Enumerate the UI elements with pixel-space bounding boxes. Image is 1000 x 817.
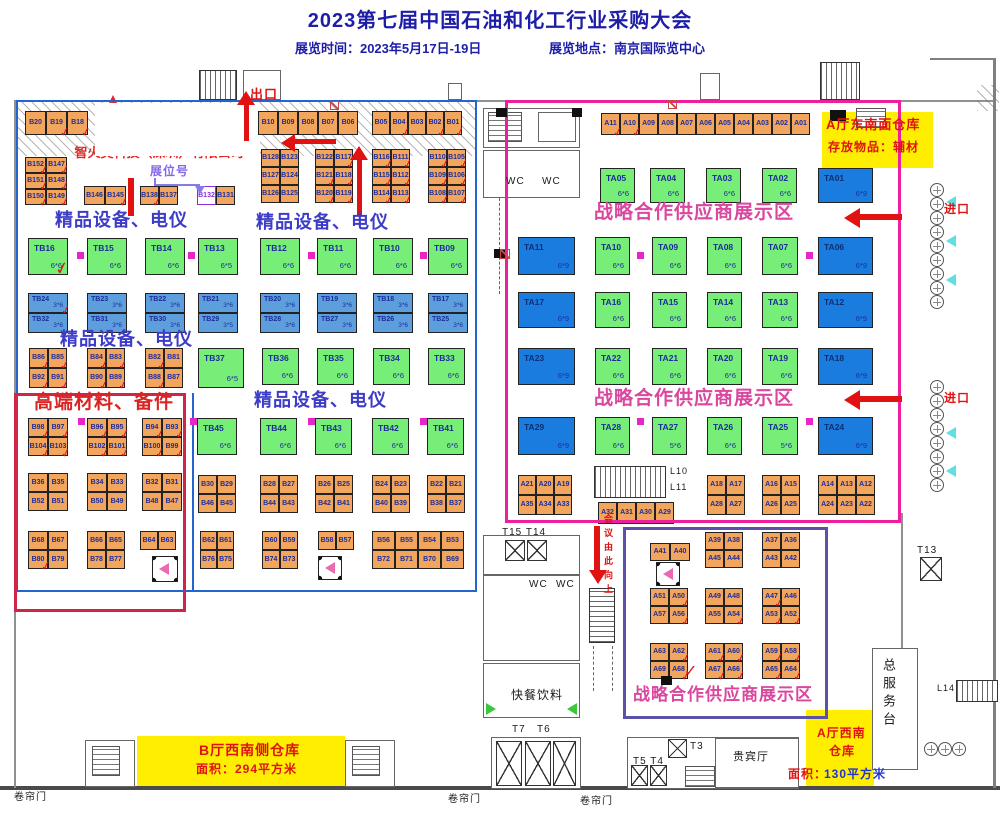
booth-id: TB45 xyxy=(203,424,224,433)
wall xyxy=(858,214,902,220)
sold-check-icon: ✓ xyxy=(53,259,71,279)
booth-id: B128 xyxy=(262,154,279,161)
booth-B112: B112✓ xyxy=(391,167,410,185)
booth-B05: B05 xyxy=(372,111,390,135)
revolving-door-icon xyxy=(930,380,944,394)
booth-id: B26 xyxy=(318,481,331,488)
text-label: 进口 xyxy=(944,203,970,215)
booth-TB15: TB156*6 xyxy=(87,238,127,275)
booth-id: B65 xyxy=(109,537,122,544)
sold-check-icon: ✓ xyxy=(680,614,692,628)
booth-size: 6*6 xyxy=(220,442,233,450)
booth-size: 6*6 xyxy=(393,372,406,380)
revolving-door-icon xyxy=(930,281,944,295)
text-label: A厅西南 xyxy=(817,727,866,739)
booth-id: B127 xyxy=(262,172,279,179)
booth-id: B52 xyxy=(32,498,45,505)
booth-id: TA16 xyxy=(601,298,621,307)
booth-TB27: TB273*6 xyxy=(317,313,357,333)
booth-size: 6*6 xyxy=(670,315,683,323)
booth-A58: A58✓ xyxy=(781,643,800,661)
text-label: 快餐饮料 xyxy=(511,689,563,701)
text-label: 精品设备、电仪 xyxy=(60,330,193,348)
text-label: 会议由此向上 xyxy=(603,514,612,598)
booth-id: A21 xyxy=(521,481,534,488)
booth-id: TB42 xyxy=(378,424,399,433)
booth-size: 6*6 xyxy=(340,262,353,270)
booth-TA11: TA116*9 xyxy=(518,237,575,275)
sold-check-icon: ✓ xyxy=(735,614,747,628)
booth-B127: B127 xyxy=(261,167,280,185)
revolving-door-icon xyxy=(930,295,944,309)
sold-check-icon: ✓ xyxy=(80,125,92,139)
booth-A56: A56✓ xyxy=(669,606,688,624)
pillar-marker xyxy=(806,252,813,259)
booth-A02: A02 xyxy=(772,113,791,135)
booth-B151: B151✓ xyxy=(25,173,46,189)
booth-TB36: TB366*6 xyxy=(262,348,299,385)
escalator-icon xyxy=(820,62,860,100)
booth-id: A49 xyxy=(708,593,721,600)
booth-B26: B26 xyxy=(315,475,334,494)
booth-B89: B89✓ xyxy=(106,368,125,388)
booth-id: A17 xyxy=(729,481,742,488)
booth-B115: B115✓ xyxy=(372,167,391,185)
booth-B109: B109✓ xyxy=(428,167,447,185)
booth-id: B77 xyxy=(109,556,122,563)
booth-size: 6*9 xyxy=(856,262,869,270)
text-label: 面积： xyxy=(788,768,827,780)
wall xyxy=(14,102,16,788)
revolving-door-icon xyxy=(930,239,944,253)
booth-B78: B78 xyxy=(87,550,106,569)
booth-B34: B34 xyxy=(87,473,107,492)
booth-TB10: TB106*6 xyxy=(373,238,413,275)
dashed-joint-line xyxy=(499,198,500,294)
text-label: 卷帘门 xyxy=(448,795,481,805)
booth-B49: B49 xyxy=(107,492,127,511)
booth-id: A14 xyxy=(821,481,834,488)
booth-A20: A20 xyxy=(536,475,554,495)
booth-id: B59 xyxy=(283,537,296,544)
booth-id: B48 xyxy=(146,498,159,505)
booth-id: TB32 xyxy=(32,316,49,323)
booth-TA29: TA296*9 xyxy=(518,417,575,455)
booth-A48: A48 xyxy=(724,588,743,606)
booth-B63: B63 xyxy=(158,531,176,550)
booth-id: B72 xyxy=(377,556,390,563)
booth-id: B08 xyxy=(302,119,315,126)
text-label: L14 xyxy=(937,684,955,693)
booth-B68: B68 xyxy=(28,531,48,550)
text-label: 130平方米 xyxy=(824,768,886,780)
booth-id: B123 xyxy=(281,154,298,161)
booth-id: A44 xyxy=(727,555,740,562)
booth-id: TA17 xyxy=(524,298,544,307)
booth-B40: B40 xyxy=(372,494,391,513)
booth-B120: B120✓ xyxy=(315,185,334,203)
booth-B27: B27 xyxy=(279,475,298,494)
booth-A59: A59✓ xyxy=(762,643,781,661)
booth-size: 6*6 xyxy=(283,262,296,270)
sold-check-icon: ✓ xyxy=(345,193,357,207)
pillar-marker xyxy=(420,252,427,259)
booth-id: B60 xyxy=(265,537,278,544)
booth-B37: B37 xyxy=(446,494,465,513)
wall xyxy=(901,513,903,648)
booth-B76: B76 xyxy=(200,550,217,569)
booth-id: TB36 xyxy=(268,354,289,363)
booth-id: TA08 xyxy=(713,243,733,252)
booth-B70: B70 xyxy=(418,550,441,569)
booth-id: A33 xyxy=(557,501,570,508)
booth-TA06: TA066*9 xyxy=(818,237,873,275)
booth-TB12: TB126*6 xyxy=(260,238,300,275)
text-label: 高端材料、备件 xyxy=(34,393,174,412)
booth-id: A24 xyxy=(821,501,834,508)
booth-B81: B81 xyxy=(164,348,183,368)
room-outline xyxy=(700,73,720,100)
direction-marker-up xyxy=(350,146,368,160)
booth-B25: B25 xyxy=(334,475,353,494)
booth-B35: B35 xyxy=(48,473,68,492)
elevator-icon xyxy=(527,540,547,561)
booth-B87: B87 xyxy=(164,368,183,388)
booth-id: B46 xyxy=(201,500,214,507)
booth-TA23: TA236*9 xyxy=(518,348,575,385)
booth-id: B44 xyxy=(263,500,276,507)
booth-TB42: TB426*6 xyxy=(372,418,409,455)
booth-B65: B65 xyxy=(106,531,125,550)
booth-B83: B83✓ xyxy=(106,348,125,368)
room-outline xyxy=(483,150,580,198)
booth-id: B31 xyxy=(166,479,179,486)
booth-id: B06 xyxy=(342,119,355,126)
booth-id: A23 xyxy=(840,501,853,508)
booth-B97: B97✓ xyxy=(48,418,68,437)
booth-TB24: TB243*6✓ xyxy=(28,293,68,313)
booth-TA28: TA286*6 xyxy=(595,417,630,455)
booth-id: B57 xyxy=(339,537,352,544)
sold-check-icon: ✓ xyxy=(792,669,804,683)
booth-A30: A30 xyxy=(636,502,655,524)
booth-B06: B06 xyxy=(338,111,358,135)
booth-id: A40 xyxy=(674,548,687,555)
booth-size: 6*6 xyxy=(780,190,793,198)
booth-size: 3*6 xyxy=(112,303,124,310)
text-label: 展位号 xyxy=(150,165,189,177)
booth-B119: B119✓ xyxy=(334,185,353,203)
booth-size: 6*6 xyxy=(781,262,794,270)
booth-A52: A52✓ xyxy=(781,606,800,624)
booth-B101: B101✓ xyxy=(107,437,127,456)
booth-B50: B50 xyxy=(87,492,107,511)
booth-id: TA11 xyxy=(524,243,544,252)
text-label: T6 xyxy=(537,725,551,735)
booth-TA10: TA106*6 xyxy=(595,237,630,275)
booth-B64: B64 xyxy=(140,531,158,550)
booth-B85: B85✓ xyxy=(48,348,67,368)
pillar-marker xyxy=(637,418,644,425)
booth-TA01: TA016*9 xyxy=(818,168,873,203)
elevator-icon xyxy=(496,741,522,786)
booth-B41: B41 xyxy=(334,494,353,513)
revolving-door-icon xyxy=(930,450,944,464)
wall xyxy=(483,574,580,576)
booth-B98: B98✓ xyxy=(28,418,48,437)
booth-id: TA15 xyxy=(658,298,678,307)
booth-size: 6*9 xyxy=(856,442,869,450)
area-fill xyxy=(95,103,260,156)
booth-size: 6*6 xyxy=(781,315,794,323)
booth-id: B78 xyxy=(90,556,103,563)
booth-TB22: TB223*6 xyxy=(145,293,185,313)
booth-id: A39 xyxy=(708,537,721,544)
booth-id: B53 xyxy=(446,537,459,544)
booth-B145: B145✓ xyxy=(105,186,126,205)
booth-id: A26 xyxy=(765,501,778,508)
booth-B45: B45 xyxy=(217,494,236,513)
elevator-icon xyxy=(920,557,942,581)
booth-B74: B74 xyxy=(262,550,280,569)
booth-A17: A17 xyxy=(726,475,745,495)
booth-B94: B94✓ xyxy=(142,418,162,437)
booth-B104: B104✓ xyxy=(28,437,48,456)
booth-TB26: TB263*6 xyxy=(373,313,413,333)
booth-id: TB35 xyxy=(323,354,344,363)
elevator-icon xyxy=(668,739,687,758)
booth-B44: B44 xyxy=(260,494,279,513)
booth-id: B41 xyxy=(337,500,350,507)
booth-id: TA06 xyxy=(824,243,844,252)
booth-id: A27 xyxy=(729,501,742,508)
booth-id: A28 xyxy=(710,501,723,508)
revolving-door-icon xyxy=(930,225,944,239)
booth-id: B24 xyxy=(375,481,388,488)
booth-B111: B111✓ xyxy=(391,149,410,167)
booth-B122: B122 xyxy=(315,149,334,167)
booth-B61: B61 xyxy=(217,531,234,550)
booth-id: B56 xyxy=(377,537,390,544)
booth-id: A43 xyxy=(765,555,778,562)
booth-id: B73 xyxy=(283,556,296,563)
wall xyxy=(357,158,362,215)
booth-id: B03 xyxy=(411,119,424,126)
booth-TB21: TB213*6 xyxy=(198,293,238,313)
booth-id: B126 xyxy=(262,190,279,197)
booth-id: TA07 xyxy=(768,243,788,252)
booth-id: B131 xyxy=(217,192,234,199)
booth-TA22: TA226*6 xyxy=(595,348,630,385)
booth-id: TB16 xyxy=(34,244,55,253)
booth-A35: A35 xyxy=(518,495,536,515)
booth-B08: B08 xyxy=(298,111,318,135)
revolving-door-icon xyxy=(952,742,966,756)
wall xyxy=(154,184,200,186)
booth-TB19: TB193*6 xyxy=(317,293,357,313)
booth-B118: B118✓ xyxy=(334,167,353,185)
booth-TA05: TA056*6 xyxy=(600,168,635,203)
door-swing-mark xyxy=(668,100,677,109)
booth-B18: B18✓ xyxy=(67,111,88,135)
booth-size: 6*6 xyxy=(618,190,631,198)
booth-id: A25 xyxy=(784,501,797,508)
booth-B10: B10 xyxy=(258,111,278,135)
booth-id: B87 xyxy=(167,374,180,381)
stairs-icon xyxy=(92,746,120,776)
booth-id: B45 xyxy=(220,500,233,507)
revolving-door-icon xyxy=(930,267,944,281)
booth-size: 6*9 xyxy=(856,315,869,323)
booth-id: TB09 xyxy=(434,244,455,253)
booth-B72: B72 xyxy=(372,550,395,569)
elevator-icon xyxy=(631,765,648,786)
booth-TA21: TA216*6 xyxy=(652,348,687,385)
booth-B82: B82✓ xyxy=(145,348,164,368)
booth-TA04: TA046*6 xyxy=(650,168,685,203)
booth-id: TB29 xyxy=(202,316,219,323)
booth-A49: A49 xyxy=(705,588,724,606)
booth-A23: A23 xyxy=(837,495,856,515)
revolving-door-icon xyxy=(930,253,944,267)
booth-id: TB15 xyxy=(93,244,114,253)
booth-A51: A51 xyxy=(650,588,669,606)
booth-id: A69 xyxy=(653,666,666,673)
booth-TB34: TB346*6 xyxy=(373,348,410,385)
text-label: L11 xyxy=(670,483,687,492)
booth-TB25: TB253*6 xyxy=(428,313,468,333)
booth-TB16: TB166*6✓ xyxy=(28,238,68,275)
booth-id: B05 xyxy=(375,119,388,126)
revolving-door-icon xyxy=(938,742,952,756)
booth-B52: B52 xyxy=(28,492,48,511)
booth-TA02: TA026*6 xyxy=(762,168,797,203)
booth-id: A18 xyxy=(710,481,723,488)
booth-size: 6*9 xyxy=(558,315,571,323)
booth-B77: B77 xyxy=(106,550,125,569)
booth-B88: B88✓ xyxy=(145,368,164,388)
booth-id: TB34 xyxy=(379,354,400,363)
booth-id: A51 xyxy=(653,593,666,600)
booth-size: 6*6 xyxy=(280,442,293,450)
booth-id: B49 xyxy=(111,498,124,505)
booth-A03: A03 xyxy=(753,113,772,135)
booth-A63: A63 xyxy=(650,643,669,661)
booth-TB18: TB183*6 xyxy=(373,293,413,313)
structural-block xyxy=(496,108,507,117)
booth-B114: B114✓ xyxy=(372,185,391,203)
booth-TB37: TB376*5 xyxy=(198,348,244,388)
booth-id: B47 xyxy=(166,498,179,505)
booth-id: TB25 xyxy=(432,316,449,323)
booth-B91: B91✓ xyxy=(48,368,67,388)
booth-B55: B55 xyxy=(395,531,418,550)
text-label: 仓库 xyxy=(829,745,855,757)
text-label: 卷帘门 xyxy=(14,793,47,803)
booth-id: B79 xyxy=(52,556,65,563)
booth-id: TB43 xyxy=(321,424,342,433)
booth-id: B146 xyxy=(86,192,103,199)
booth-A36: A36 xyxy=(781,532,800,550)
text-label: 战略合作供应商展示区 xyxy=(594,203,794,222)
booth-B121: B121✓ xyxy=(315,167,334,185)
booth-B124: B124 xyxy=(280,167,299,185)
booth-TA19: TA196*6 xyxy=(762,348,798,385)
booth-size: 5*6 xyxy=(781,442,794,450)
booth-size: 6*6 xyxy=(447,442,460,450)
booth-B128: B128 xyxy=(261,149,280,167)
booth-B152: B152✓ xyxy=(25,157,46,173)
pillar-marker xyxy=(420,418,427,425)
booth-id: A63 xyxy=(653,648,666,655)
booth-B107: B107✓ xyxy=(447,185,466,203)
booth-size: 6*6 xyxy=(670,372,683,380)
booth-B24: B24 xyxy=(372,475,391,494)
booth-id: B50 xyxy=(91,498,104,505)
sold-check-icon: ✓ xyxy=(119,446,131,460)
booth-TA17: TA176*9 xyxy=(518,292,575,328)
booth-TA20: TA206*6 xyxy=(707,348,742,385)
booth-B138: B138✓ xyxy=(140,186,159,205)
booth-B03: B03 xyxy=(408,111,426,135)
booth-TB45: TB456*6 xyxy=(197,418,237,455)
booth-id: A35 xyxy=(521,501,534,508)
booth-id: TB12 xyxy=(266,244,287,253)
booth-A10: A10✓ xyxy=(620,113,639,135)
revolving-door-icon xyxy=(930,211,944,225)
booth-id: TB28 xyxy=(264,316,281,323)
booth-A09: A09 xyxy=(639,113,658,135)
booth-id: TB10 xyxy=(379,244,400,253)
booth-id: A48 xyxy=(727,593,740,600)
booth-B86: B86✓ xyxy=(29,348,48,368)
booth-id: B55 xyxy=(400,537,413,544)
booth-id: B69 xyxy=(446,556,459,563)
sold-check-icon: ✓ xyxy=(117,378,129,392)
booth-A55: A55 xyxy=(705,606,724,624)
booth-id: B25 xyxy=(337,481,350,488)
booth-id: TA10 xyxy=(601,243,621,252)
page-title: 2023第七届中国石油和化工行业采购大会 xyxy=(0,4,1000,33)
booth-id: TA24 xyxy=(824,423,844,432)
booth-id: A20 xyxy=(539,481,552,488)
booth-id: TA03 xyxy=(712,174,732,183)
booth-id: TA28 xyxy=(601,423,621,432)
text-label: T3 xyxy=(690,742,704,752)
booth-id: B23 xyxy=(394,481,407,488)
booth-size: 6*6 xyxy=(448,372,461,380)
text-label: 卷帘门 xyxy=(580,797,613,807)
booth-size: 6*6 xyxy=(282,372,295,380)
wall xyxy=(294,139,336,144)
booth-size: 3*6 xyxy=(398,303,410,310)
direction-marker-left xyxy=(946,427,956,439)
booth-id: TB23 xyxy=(91,296,108,303)
booth-id: B137 xyxy=(160,192,177,199)
revolving-door-icon xyxy=(930,478,944,492)
booth-A40: A40 xyxy=(670,543,690,561)
booth-B116: B116✓ xyxy=(372,149,391,167)
booth-B42: B42 xyxy=(315,494,334,513)
booth-B38: B38 xyxy=(427,494,446,513)
booth-A46: A46 xyxy=(781,588,800,606)
booth-id: B33 xyxy=(111,479,124,486)
room-outline xyxy=(448,83,462,100)
sold-check-icon: ✓ xyxy=(59,378,71,392)
booth-id: TA22 xyxy=(601,354,621,363)
direction-marker-left xyxy=(946,465,956,477)
text-label: WC xyxy=(556,580,575,590)
